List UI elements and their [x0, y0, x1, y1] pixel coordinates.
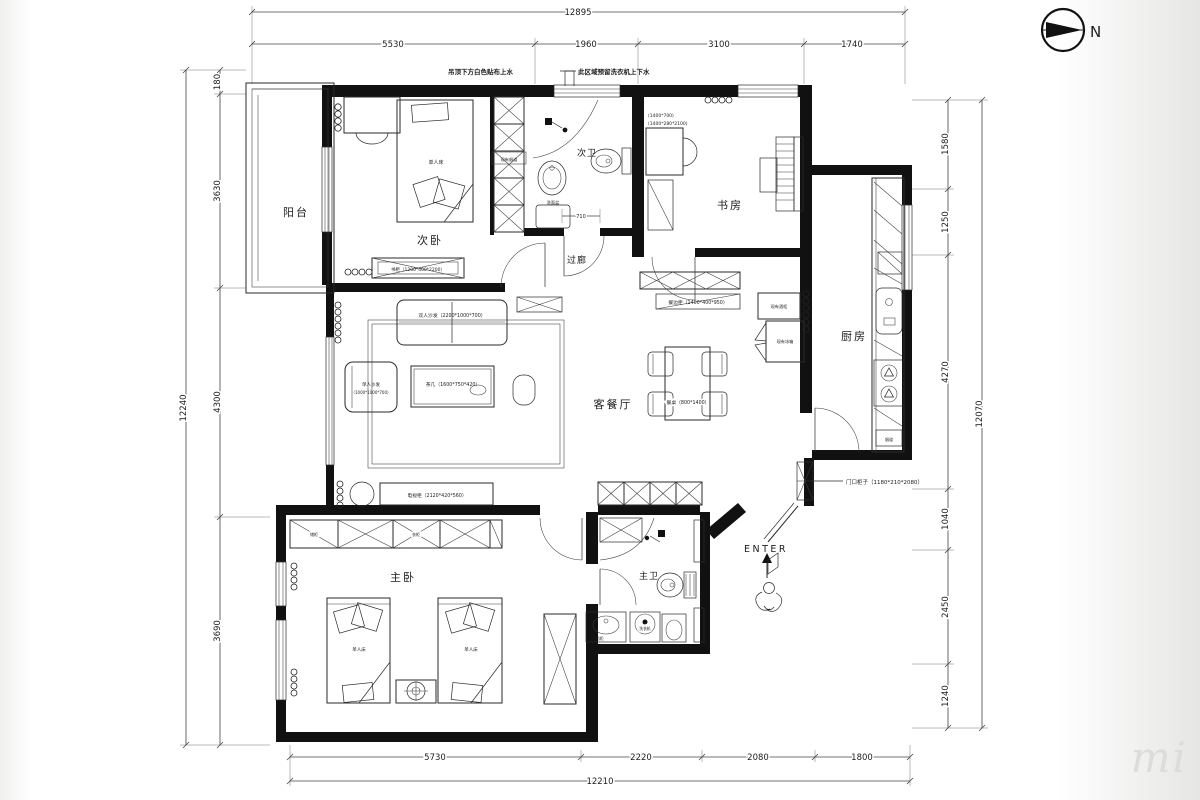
labels: 阳台 次卧 次卫 书房 过廊 厨房 客餐厅 主卧 主卫 ENTER 单人床 单人…: [283, 113, 923, 653]
room-label-corridor: 过廊: [567, 254, 587, 266]
bedroom2-furniture: [335, 97, 473, 278]
room-label-living: 客餐厅: [594, 397, 633, 411]
note-right-text: 此区域预留洗衣机上下水: [578, 67, 650, 76]
bookshelf-icon: [776, 137, 803, 211]
stove-icon: [874, 360, 904, 406]
door-kitchen: [815, 408, 859, 452]
dim-top-seg1: 5530: [382, 40, 404, 50]
label-sofa-double: 双人沙发（2200*1000*700）: [418, 312, 485, 319]
dimension-chain-bottom: 5730 2220 2080 1800 12210: [287, 745, 913, 787]
label-entry-cabinet: 门口柜子（1180*210*2080）: [846, 478, 923, 486]
sofa-double-icon: [397, 300, 507, 345]
dim-left-seg1: 180: [213, 74, 223, 90]
window-master-left-2: [276, 620, 286, 700]
dim-bottom-seg1: 5730: [424, 753, 446, 763]
label-flue: 现有烟道: [501, 156, 519, 163]
dim-top-seg2: 1960: [575, 40, 597, 50]
room-label-bath2: 次卫: [577, 147, 597, 159]
entry-label: ENTER: [744, 544, 788, 555]
entry-cabinet-icon: [797, 462, 843, 500]
dim-left-total: 12240: [179, 394, 189, 421]
label-dining-table: 餐桌（800*1400）: [667, 399, 710, 406]
label-bookshelf-dims: (1400*280*2100): [648, 121, 688, 127]
label-wine-cabinet: 现有酒柜: [771, 303, 788, 310]
person-figure-icon: [756, 583, 782, 612]
dim-top-seg4: 1740: [841, 40, 863, 50]
label-fridge: 现有冰箱: [777, 338, 794, 345]
dim-top-total: 12895: [564, 8, 591, 18]
label-single-bed-1: 单人床: [428, 159, 443, 166]
window-study-top: [738, 85, 798, 97]
room-label-bath1: 主卫: [639, 570, 659, 582]
kitchen-sink-icon: [876, 288, 902, 334]
entry-diagonal-wall: [706, 503, 746, 539]
label-desk-dims: (1400*700): [648, 113, 674, 119]
storage-row: [598, 482, 702, 505]
label-sideboard: 餐边柜（1400*400*950）: [668, 299, 727, 306]
enter-arrow-icon: [762, 553, 778, 578]
compass-arrow-icon: [1046, 22, 1082, 38]
room-label-kitchen: 厨房: [841, 330, 867, 343]
room-label-master: 主卧: [390, 571, 416, 584]
dimension-chain-right: 12070 1580 1250 4270 1040 2450 1240: [912, 97, 988, 731]
kitchen-furniture: [803, 178, 904, 452]
dim-bottom-seg2: 2220: [630, 753, 652, 763]
door-entry: [764, 503, 798, 542]
door-master: [540, 518, 582, 560]
label-wardrobe-a: 储柜: [310, 531, 318, 537]
room-label-bedroom2: 次卧: [417, 233, 443, 247]
plumbing-notes: 吊顶下方白色贴布上水 此区域预留洗衣机上下水: [448, 67, 650, 86]
window-living-left: [326, 337, 334, 465]
pouf-icon: [513, 375, 535, 405]
toilet-icon-master: [657, 572, 696, 598]
window-bath2-top: [554, 85, 620, 97]
dining-table-icon: [648, 347, 727, 420]
label-single-bed-3: 单人床: [464, 646, 478, 653]
label-tv-cabinet: 电视柜（2120*420*560）: [407, 492, 466, 499]
dim-right-seg3: 4270: [941, 361, 951, 383]
floor-plan-drawing: 12895 5530 1960 3100 1740 5730 2220 2080…: [0, 0, 1200, 800]
label-tea-table: 茶几（1600*750*420）: [426, 381, 481, 388]
dimension-chain-left: 12240 180 3630 4300 3690: [179, 67, 270, 748]
nightstand-icon: [396, 680, 436, 703]
door-width-dim: 710: [562, 209, 600, 223]
label-wardrobe-b: 衣柜: [412, 531, 420, 537]
dim-left-seg2: 3630: [213, 180, 223, 202]
north-compass: N: [1042, 9, 1101, 51]
label-washer: 洗衣机: [639, 626, 651, 631]
living-furniture: [335, 297, 564, 508]
wall-cabinet-icon: [517, 297, 562, 312]
dim-right-seg2: 1250: [941, 211, 951, 233]
door-study: [652, 257, 695, 300]
dim-top-seg3: 3100: [708, 40, 730, 50]
small-basin-icon: [662, 614, 686, 642]
note-left-text: 吊顶下方白色贴布上水: [448, 67, 514, 76]
window-master-left-1: [276, 562, 286, 606]
master-furniture: [290, 520, 576, 704]
watermark: mi: [1131, 733, 1188, 782]
walls: [276, 85, 912, 742]
label-washbasin: 洗面盆: [547, 199, 560, 206]
wardrobe-row: [290, 520, 502, 548]
washbasin-icon: [538, 161, 566, 195]
dim-bottom-total: 12210: [586, 777, 613, 787]
bath2-furniture: 710: [492, 97, 631, 232]
dim-door-710: 710: [576, 214, 586, 220]
dim-right-seg1: 1580: [941, 133, 951, 155]
dim-bottom-seg3: 2080: [747, 753, 769, 763]
door-bath1: [600, 569, 636, 605]
dining-furniture: [640, 272, 804, 420]
window-bedroom2-balcony: [322, 147, 332, 232]
label-bookcase: 书柜（1200*400*2200）: [391, 266, 445, 273]
label-sofa-single-2: （1000*1000*700）: [351, 390, 391, 395]
label-sofa-single-1: 单人沙发: [362, 381, 380, 388]
room-label-study: 书房: [717, 199, 743, 212]
balcony-glazing: [246, 83, 334, 293]
label-single-bed-2: 单人床: [352, 646, 366, 653]
tall-cabinet-icon: [544, 614, 576, 704]
dim-right-seg5: 2450: [941, 596, 951, 618]
entry-furniture: [756, 462, 843, 611]
compass-north-label: N: [1090, 23, 1101, 41]
dim-bottom-seg4: 1800: [851, 753, 873, 763]
room-label-balcony: 阳台: [283, 205, 309, 219]
dim-right-seg6: 1240: [941, 685, 951, 707]
dim-right-seg4: 1040: [941, 508, 951, 530]
dim-left-seg3: 4300: [213, 391, 223, 413]
door-bedroom2: [501, 243, 545, 287]
floor-plan-page: 12895 5530 1960 3100 1740 5730 2220 2080…: [0, 0, 1200, 800]
dim-left-seg4: 3690: [213, 620, 223, 642]
label-vanity: 卫浴柜: [592, 636, 604, 641]
label-kitchen-flue: 烟道: [885, 436, 893, 442]
dim-right-total: 12070: [975, 400, 985, 427]
